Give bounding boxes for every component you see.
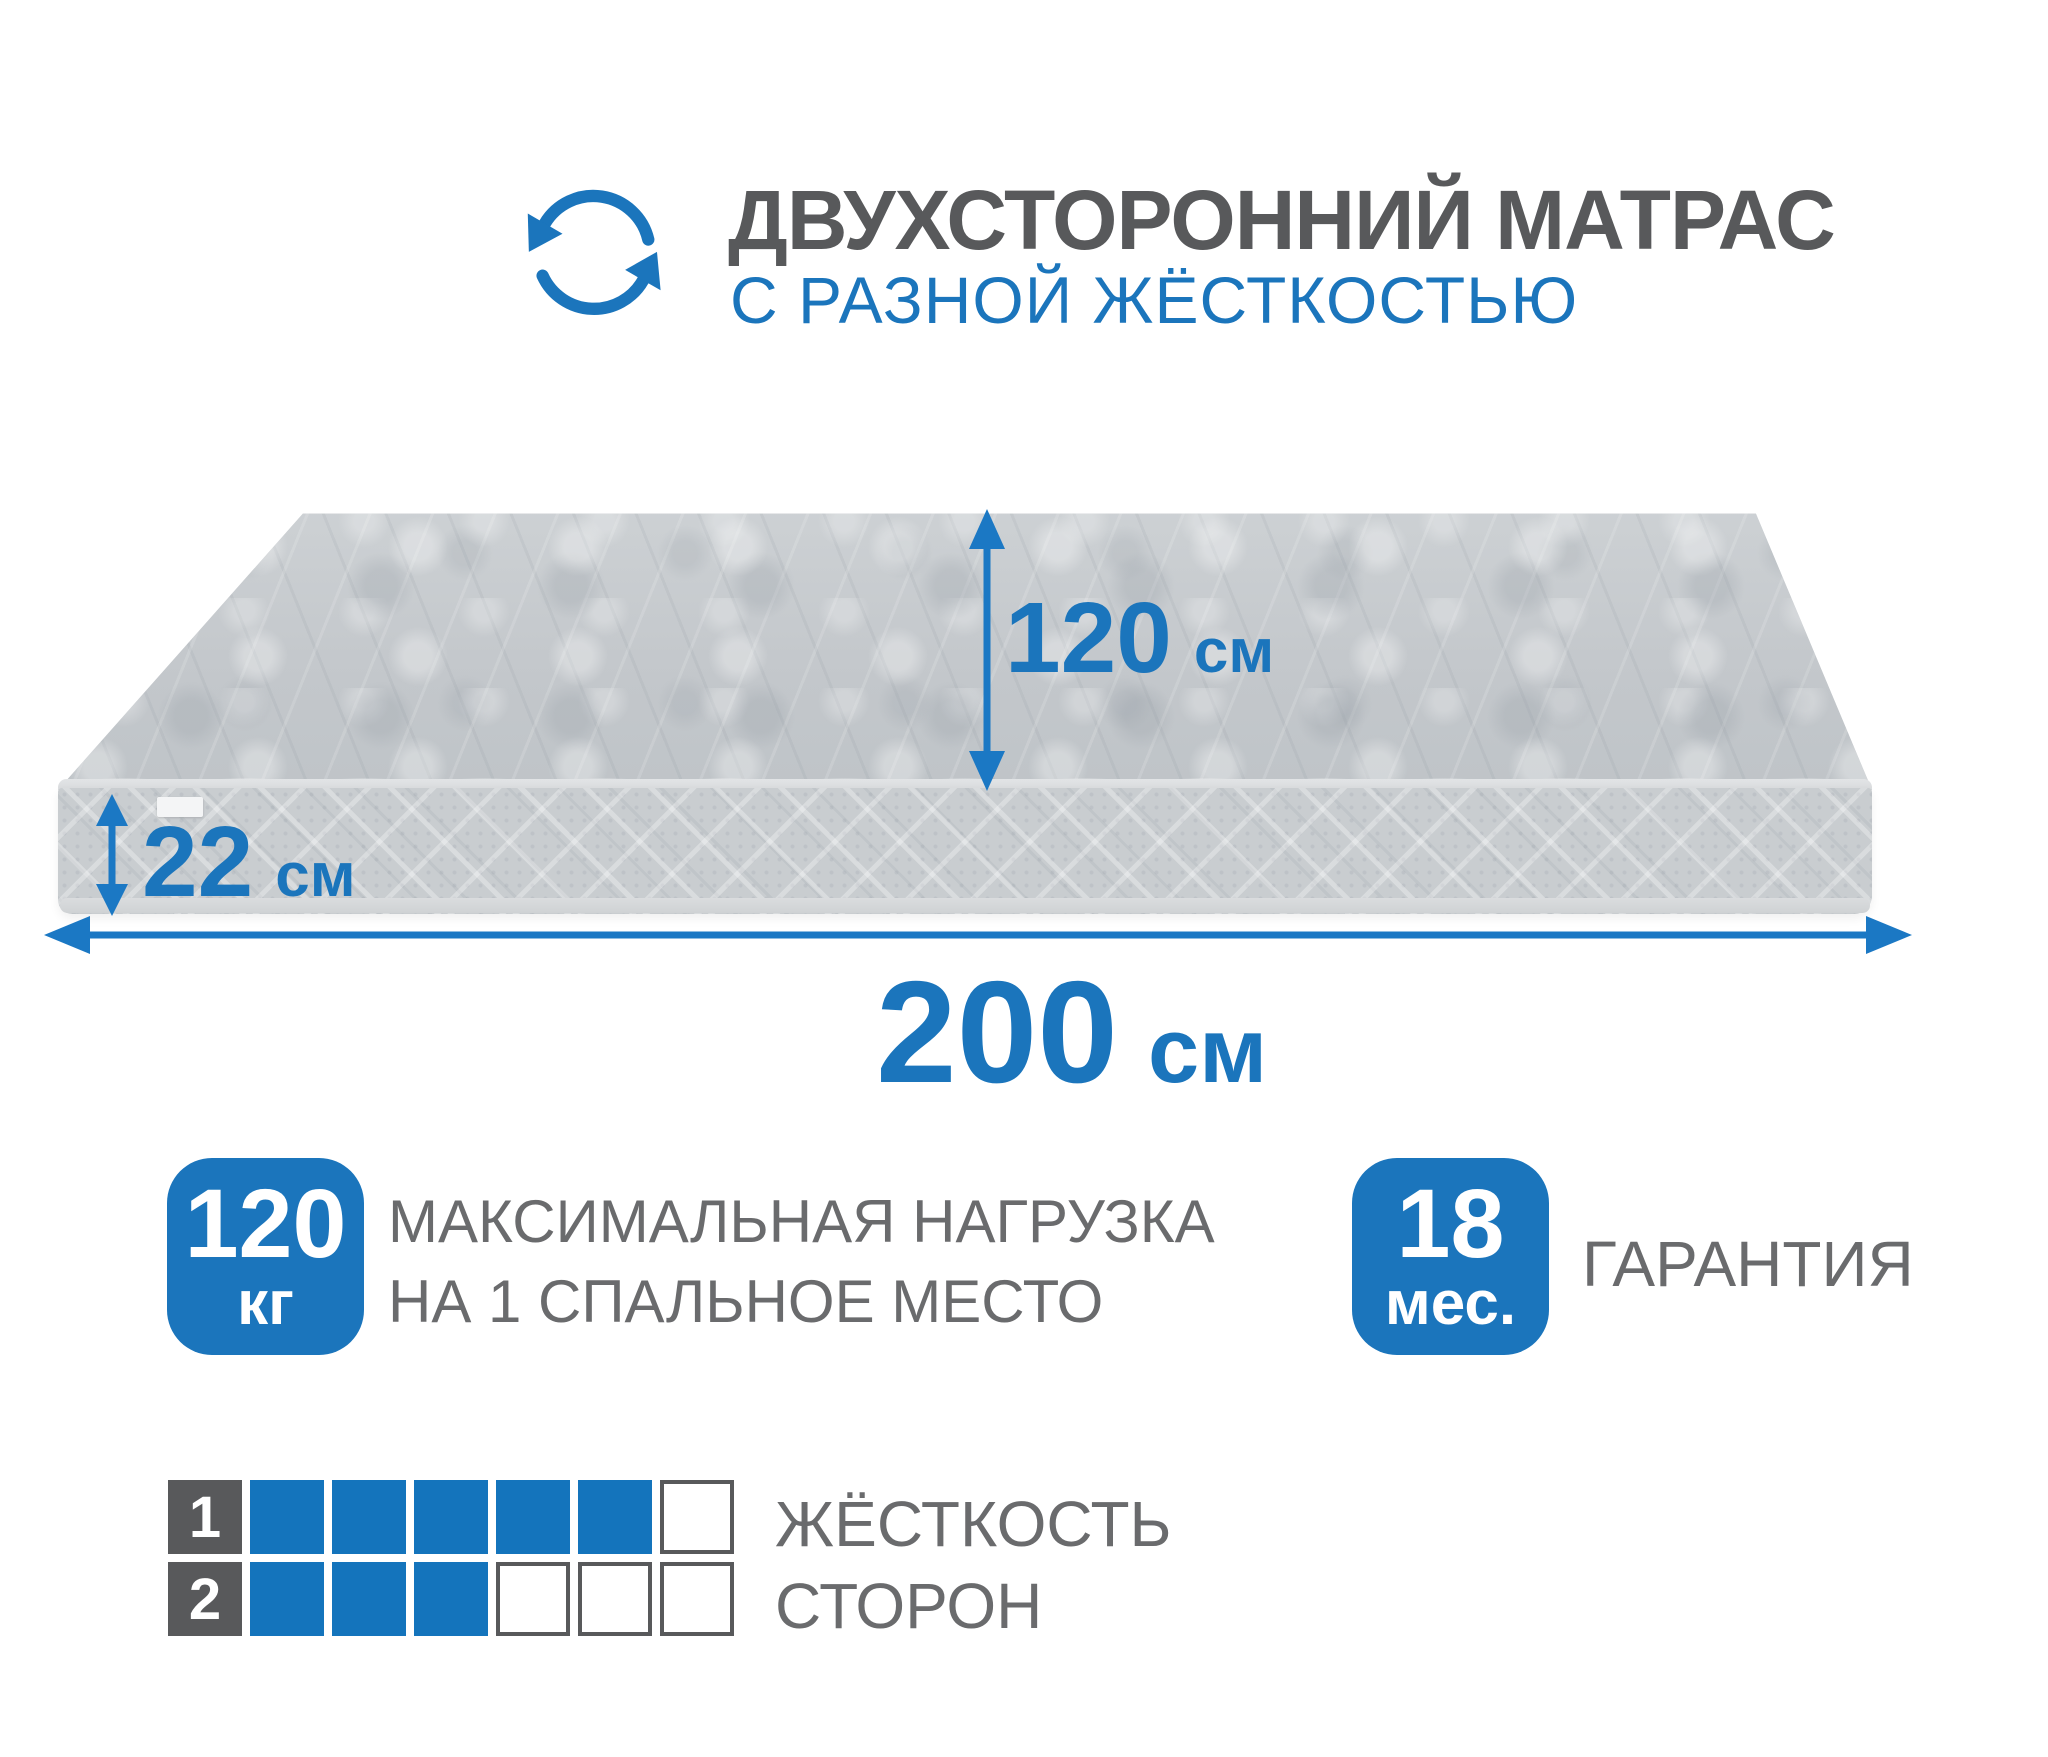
length-unit: см bbox=[1148, 1005, 1267, 1097]
firmness-square-empty bbox=[496, 1562, 570, 1636]
warranty-value: 18 bbox=[1397, 1178, 1505, 1270]
firmness-row-side1: 1 bbox=[168, 1480, 734, 1554]
rotate-arrows-icon bbox=[508, 178, 680, 330]
height-dimension-arrow bbox=[84, 792, 140, 918]
warranty-unit: мес. bbox=[1385, 1273, 1516, 1335]
max-load-badge: 120 кг bbox=[167, 1158, 364, 1355]
firmness-side1-number: 1 bbox=[168, 1480, 242, 1554]
max-load-unit: кг bbox=[237, 1273, 294, 1335]
firmness-square-empty bbox=[660, 1480, 734, 1554]
max-load-caption-line2: НА 1 СПАЛЬНОЕ МЕСТО bbox=[388, 1262, 1215, 1342]
warranty-badge: 18 мес. bbox=[1352, 1158, 1549, 1355]
max-load-caption-line1: МАКСИМАЛЬНАЯ НАГРУЗКА bbox=[388, 1182, 1215, 1262]
max-load-caption: МАКСИМАЛЬНАЯ НАГРУЗКА НА 1 СПАЛЬНОЕ МЕСТ… bbox=[388, 1182, 1215, 1342]
max-load-value: 120 bbox=[185, 1178, 347, 1270]
width-unit: см bbox=[1194, 621, 1274, 683]
firmness-side2-number: 2 bbox=[168, 1562, 242, 1636]
length-value: 200 bbox=[876, 960, 1118, 1105]
warranty-caption: ГАРАНТИЯ bbox=[1582, 1232, 1914, 1296]
firmness-caption-line1: ЖЁСТКОСТЬ bbox=[775, 1492, 1172, 1556]
length-dimension-label: 200 см bbox=[876, 960, 1267, 1105]
height-dimension-label: 22 см bbox=[142, 812, 356, 912]
firmness-square-filled bbox=[496, 1480, 570, 1554]
firmness-square-filled bbox=[332, 1480, 406, 1554]
width-value: 120 bbox=[1005, 588, 1172, 688]
firmness-square-filled bbox=[250, 1480, 324, 1554]
firmness-row-side2: 2 bbox=[168, 1562, 734, 1636]
firmness-square-filled bbox=[332, 1562, 406, 1636]
page-title: ДВУХСТОРОННИЙ МАТРАС bbox=[728, 172, 1835, 269]
firmness-square-empty bbox=[660, 1562, 734, 1636]
mattress-infographic: ДВУХСТОРОННИЙ МАТРАС С РАЗНОЙ ЖЁСТКОСТЬЮ… bbox=[0, 0, 2048, 1757]
firmness-square-filled bbox=[414, 1562, 488, 1636]
height-value: 22 bbox=[142, 812, 253, 912]
page-subtitle: С РАЗНОЙ ЖЁСТКОСТЬЮ bbox=[730, 262, 1578, 338]
firmness-scale: 1 2 bbox=[168, 1480, 734, 1636]
firmness-square-filled bbox=[250, 1562, 324, 1636]
height-unit: см bbox=[275, 845, 355, 907]
width-dimension-label: 120 см bbox=[1005, 588, 1274, 688]
firmness-square-filled bbox=[578, 1480, 652, 1554]
firmness-caption-line2: СТОРОН bbox=[775, 1574, 1042, 1638]
firmness-square-filled bbox=[414, 1480, 488, 1554]
firmness-square-empty bbox=[578, 1562, 652, 1636]
